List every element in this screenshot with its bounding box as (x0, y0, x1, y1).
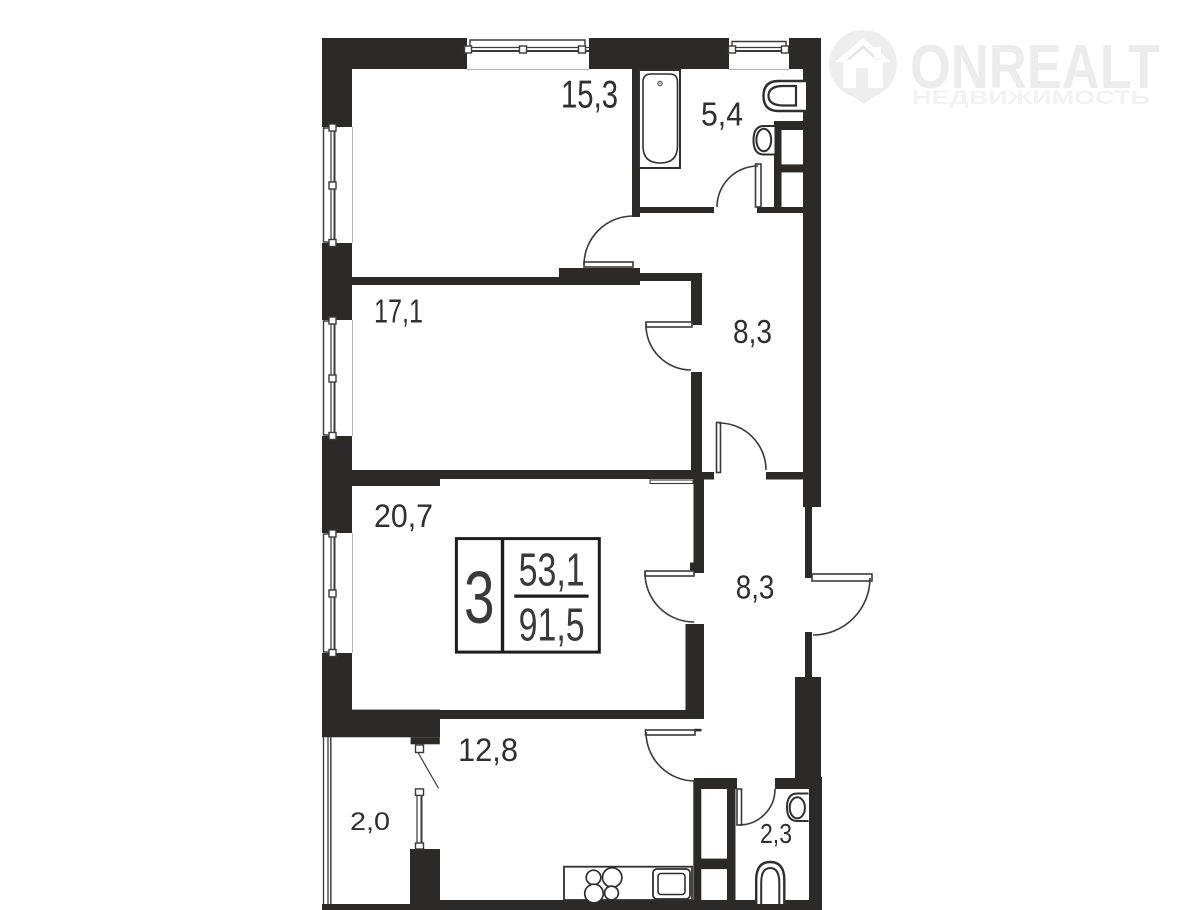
svg-text:17,1: 17,1 (374, 293, 423, 330)
svg-text:53,1: 53,1 (519, 544, 585, 596)
svg-text:91,5: 91,5 (519, 599, 585, 651)
svg-text:12,8: 12,8 (458, 732, 518, 768)
svg-text:2,3: 2,3 (760, 818, 792, 849)
svg-text:2,0: 2,0 (350, 808, 390, 836)
svg-text:5,4: 5,4 (701, 95, 743, 132)
svg-text:НЕДВИЖИМОСТЬ: НЕДВИЖИМОСТЬ (912, 88, 1150, 109)
svg-text:15,3: 15,3 (561, 74, 618, 117)
svg-text:20,7: 20,7 (374, 498, 433, 534)
svg-text:3: 3 (464, 556, 495, 639)
svg-text:8,3: 8,3 (733, 313, 772, 350)
svg-text:8,3: 8,3 (736, 569, 775, 606)
